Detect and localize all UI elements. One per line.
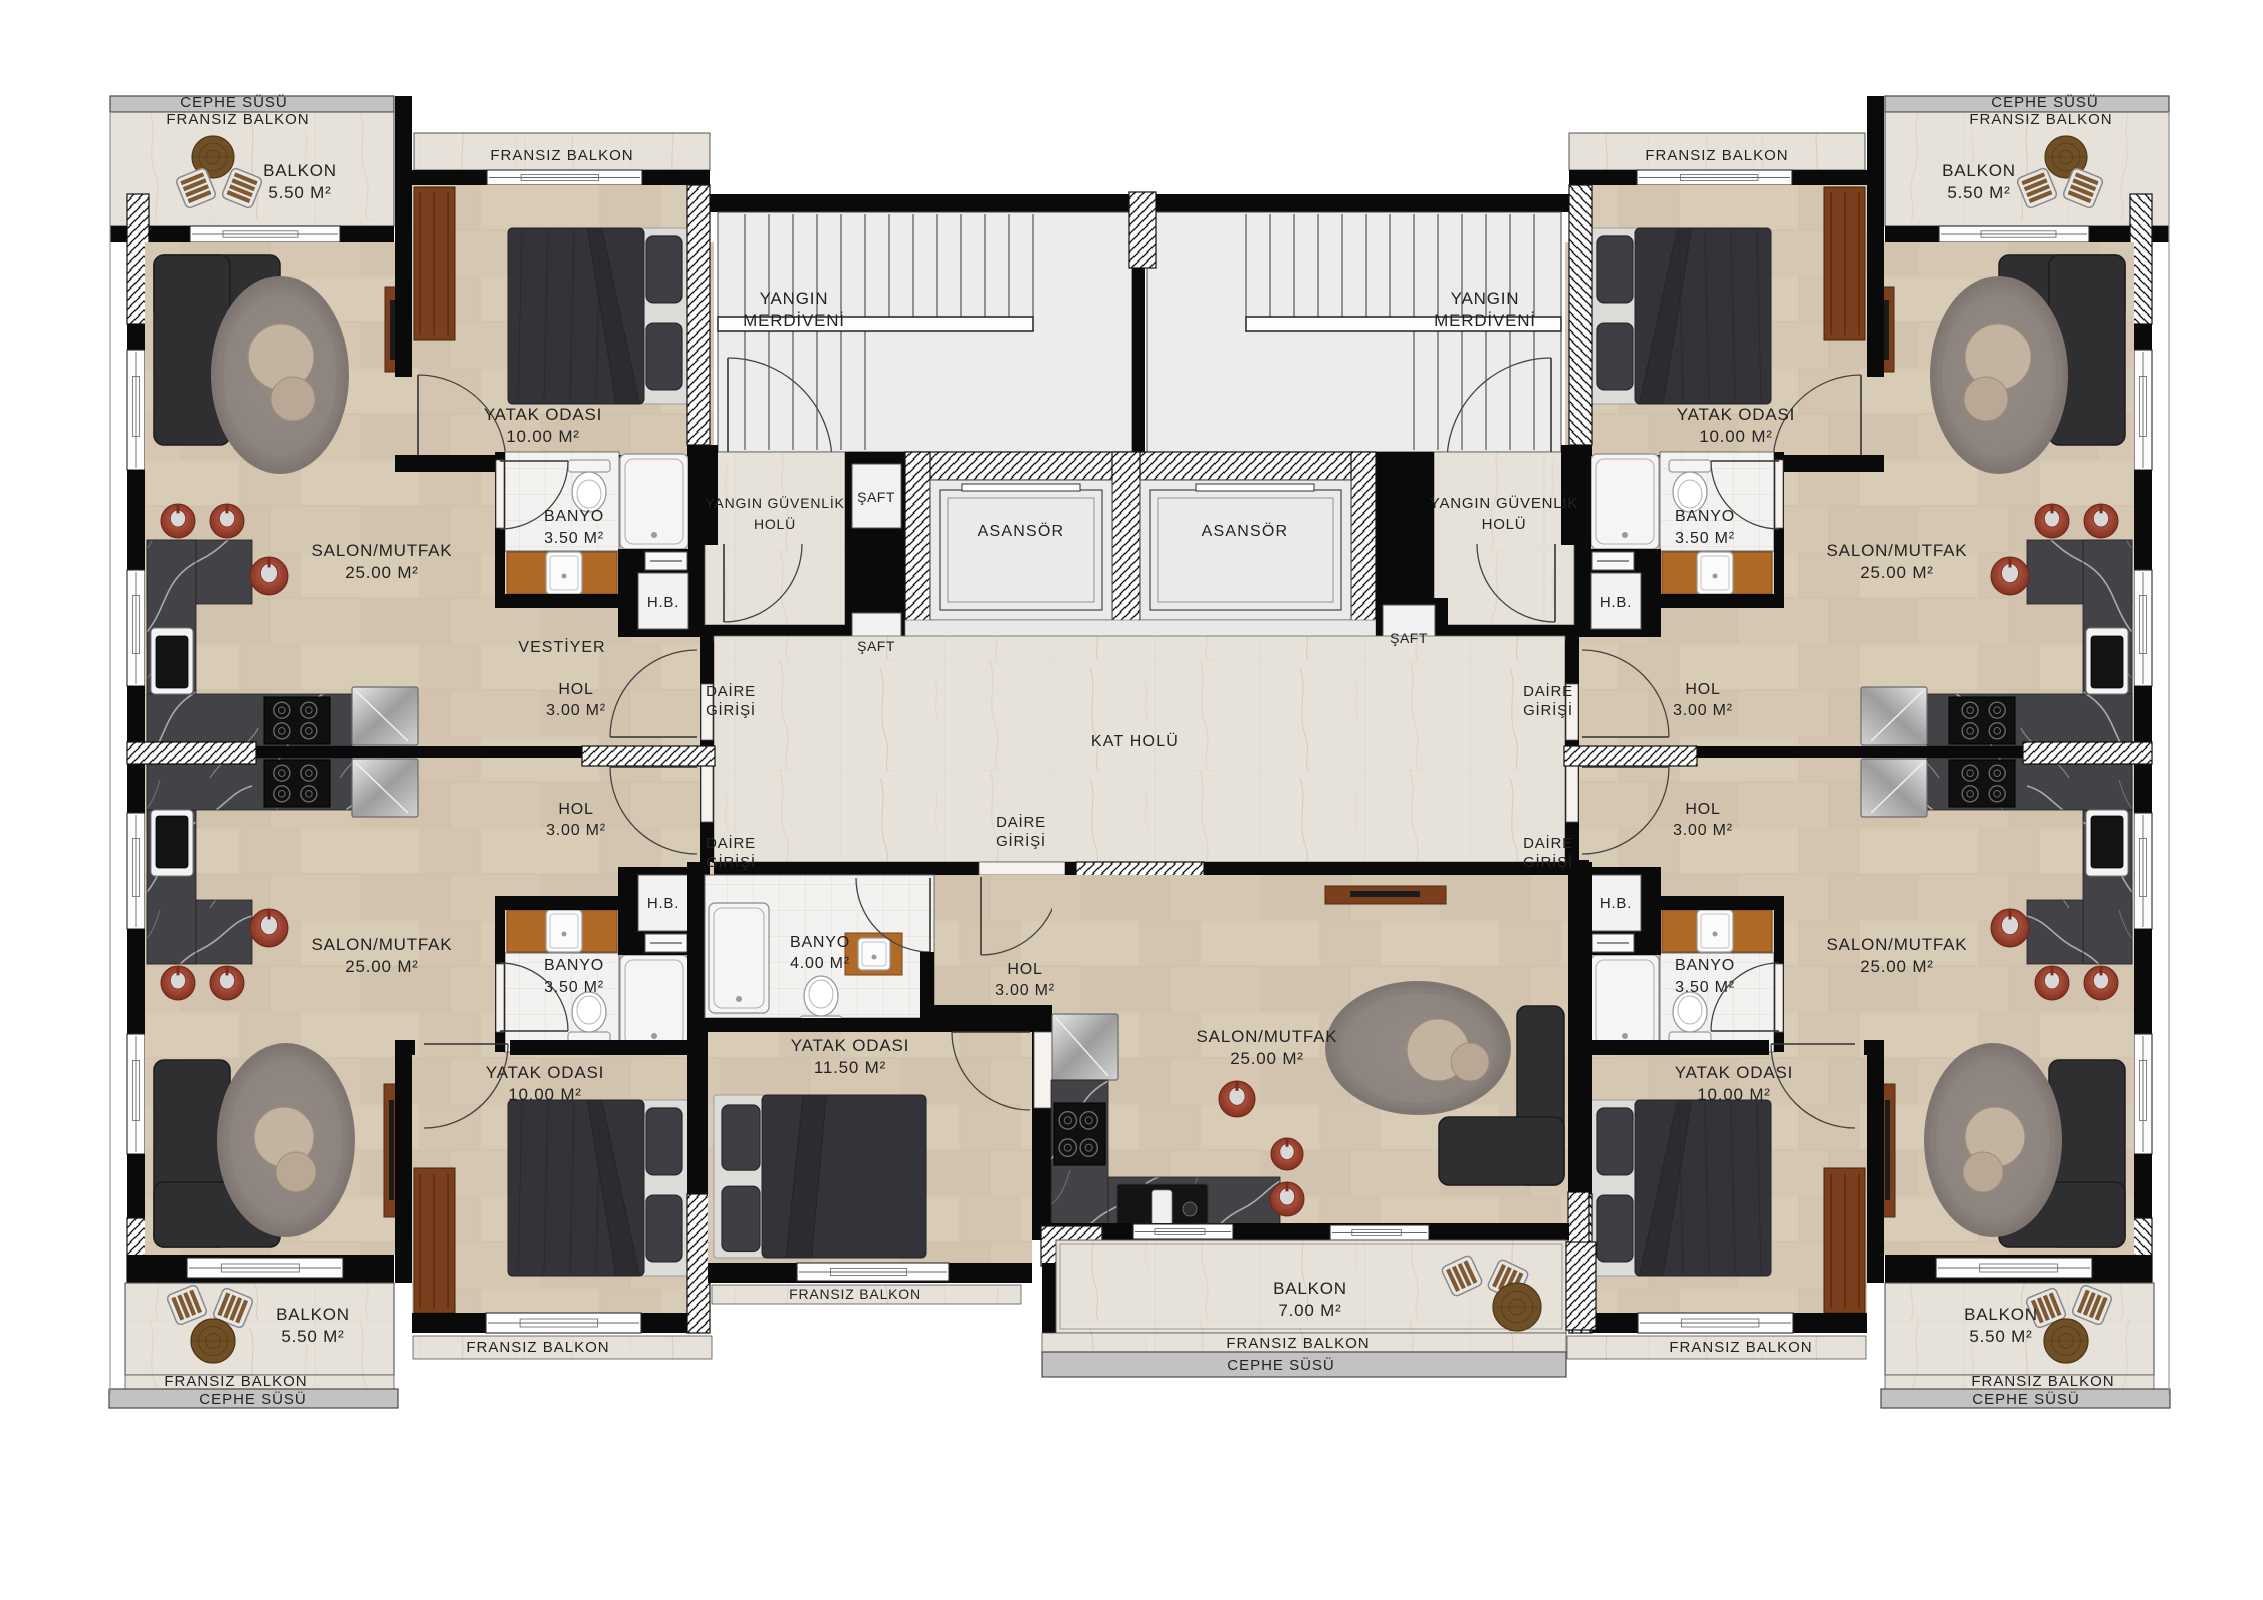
svg-text:BALKON: BALKON <box>1273 1279 1347 1298</box>
svg-text:H.B.: H.B. <box>1600 594 1632 611</box>
svg-text:SALON/MUTFAK: SALON/MUTFAK <box>1197 1027 1338 1046</box>
svg-text:10.00 M²: 10.00 M² <box>508 1085 582 1104</box>
svg-text:10.00 M²: 10.00 M² <box>1699 427 1773 446</box>
svg-text:FRANSIZ BALKON: FRANSIZ BALKON <box>164 1373 307 1390</box>
svg-text:CEPHE SÜSÜ: CEPHE SÜSÜ <box>199 1390 307 1408</box>
svg-text:ŞAFT: ŞAFT <box>1390 630 1428 646</box>
svg-text:H.B.: H.B. <box>647 895 679 912</box>
svg-text:5.50 M²: 5.50 M² <box>268 183 331 202</box>
svg-text:MERDİVENİ: MERDİVENİ <box>1434 311 1536 330</box>
svg-text:YANGIN GÜVENLİK: YANGIN GÜVENLİK <box>705 494 844 511</box>
svg-text:H.B.: H.B. <box>647 594 679 611</box>
svg-text:3.50 M²: 3.50 M² <box>544 530 604 547</box>
svg-text:FRANSIZ BALKON: FRANSIZ BALKON <box>490 147 633 164</box>
svg-text:YATAK ODASI: YATAK ODASI <box>1675 1063 1793 1082</box>
svg-text:FRANSIZ BALKON: FRANSIZ BALKON <box>789 1286 921 1302</box>
svg-text:DAİRE: DAİRE <box>996 813 1046 831</box>
svg-text:3.00 M²: 3.00 M² <box>546 702 606 719</box>
svg-text:YANGIN: YANGIN <box>1451 289 1520 308</box>
svg-text:FRANSIZ BALKON: FRANSIZ BALKON <box>1645 147 1788 164</box>
svg-text:SALON/MUTFAK: SALON/MUTFAK <box>312 935 453 954</box>
svg-text:GİRİŞİ: GİRİŞİ <box>1523 853 1573 871</box>
svg-text:ASANSÖR: ASANSÖR <box>978 522 1065 540</box>
svg-text:YATAK ODASI: YATAK ODASI <box>1677 405 1795 424</box>
svg-text:FRANSIZ BALKON: FRANSIZ BALKON <box>1969 111 2112 128</box>
svg-text:FRANSIZ BALKON: FRANSIZ BALKON <box>1669 1339 1812 1356</box>
svg-text:5.50 M²: 5.50 M² <box>1947 183 2010 202</box>
svg-text:HOLÜ: HOLÜ <box>1482 515 1527 533</box>
svg-text:YATAK ODASI: YATAK ODASI <box>484 405 602 424</box>
svg-text:GİRİŞİ: GİRİŞİ <box>706 701 756 719</box>
svg-text:SALON/MUTFAK: SALON/MUTFAK <box>312 541 453 560</box>
svg-text:HOLÜ: HOLÜ <box>754 515 796 532</box>
svg-text:BALKON: BALKON <box>263 161 337 180</box>
svg-text:4.00 M²: 4.00 M² <box>790 955 850 972</box>
svg-text:HOL: HOL <box>558 681 593 698</box>
svg-text:FRANSIZ BALKON: FRANSIZ BALKON <box>1971 1373 2114 1390</box>
svg-text:BANYO: BANYO <box>1675 957 1735 974</box>
svg-text:3.50 M²: 3.50 M² <box>1675 979 1735 996</box>
svg-text:DAİRE: DAİRE <box>706 834 756 852</box>
svg-text:FRANSIZ BALKON: FRANSIZ BALKON <box>466 1339 609 1356</box>
svg-text:3.00 M²: 3.00 M² <box>995 982 1055 999</box>
svg-text:DAİRE: DAİRE <box>1523 682 1573 700</box>
svg-text:3.50 M²: 3.50 M² <box>1675 530 1735 547</box>
svg-text:KAT HOLÜ: KAT HOLÜ <box>1091 732 1179 750</box>
svg-text:CEPHE SÜSÜ: CEPHE SÜSÜ <box>180 93 288 111</box>
svg-text:25.00 M²: 25.00 M² <box>1860 563 1934 582</box>
svg-text:BANYO: BANYO <box>1675 508 1735 525</box>
svg-text:HOL: HOL <box>558 801 593 818</box>
svg-text:BALKON: BALKON <box>1964 1305 2038 1324</box>
svg-text:10.00 M²: 10.00 M² <box>1697 1085 1771 1104</box>
svg-text:VESTİYER: VESTİYER <box>518 637 605 656</box>
svg-text:BALKON: BALKON <box>1942 161 2016 180</box>
svg-text:3.50 M²: 3.50 M² <box>544 979 604 996</box>
svg-text:DAİRE: DAİRE <box>1523 834 1573 852</box>
svg-text:5.50 M²: 5.50 M² <box>281 1327 344 1346</box>
svg-text:CEPHE SÜSÜ: CEPHE SÜSÜ <box>1991 93 2099 111</box>
svg-text:5.50 M²: 5.50 M² <box>1969 1327 2032 1346</box>
svg-text:YANGIN: YANGIN <box>760 289 829 308</box>
svg-text:BANYO: BANYO <box>544 957 604 974</box>
svg-text:BALKON: BALKON <box>276 1305 350 1324</box>
svg-text:25.00 M²: 25.00 M² <box>1860 957 1934 976</box>
svg-text:CEPHE SÜSÜ: CEPHE SÜSÜ <box>1227 1356 1335 1374</box>
svg-text:MERDİVENİ: MERDİVENİ <box>743 311 845 330</box>
svg-text:FRANSIZ BALKON: FRANSIZ BALKON <box>1226 1335 1369 1352</box>
svg-text:SALON/MUTFAK: SALON/MUTFAK <box>1827 935 1968 954</box>
svg-text:GİRİŞİ: GİRİŞİ <box>706 853 756 871</box>
svg-text:CEPHE SÜSÜ: CEPHE SÜSÜ <box>1972 1390 2080 1408</box>
svg-text:3.00 M²: 3.00 M² <box>546 822 606 839</box>
svg-text:DAİRE: DAİRE <box>706 682 756 700</box>
svg-text:10.00 M²: 10.00 M² <box>506 427 580 446</box>
svg-text:SALON/MUTFAK: SALON/MUTFAK <box>1827 541 1968 560</box>
svg-text:BANYO: BANYO <box>790 934 850 951</box>
svg-text:YANGIN GÜVENLİK: YANGIN GÜVENLİK <box>1430 494 1578 512</box>
svg-text:GİRİŞİ: GİRİŞİ <box>996 832 1046 850</box>
svg-text:H.B.: H.B. <box>1600 895 1632 912</box>
svg-text:FRANSIZ BALKON: FRANSIZ BALKON <box>166 111 309 128</box>
svg-text:25.00 M²: 25.00 M² <box>1230 1049 1304 1068</box>
svg-text:HOL: HOL <box>1685 681 1720 698</box>
svg-text:ŞAFT: ŞAFT <box>857 638 895 654</box>
svg-text:7.00 M²: 7.00 M² <box>1278 1301 1341 1320</box>
svg-text:3.00 M²: 3.00 M² <box>1673 822 1733 839</box>
svg-text:BANYO: BANYO <box>544 508 604 525</box>
svg-text:ASANSÖR: ASANSÖR <box>1202 522 1289 540</box>
svg-text:3.00 M²: 3.00 M² <box>1673 702 1733 719</box>
svg-text:11.50 M²: 11.50 M² <box>814 1058 886 1077</box>
svg-text:25.00 M²: 25.00 M² <box>345 563 419 582</box>
svg-text:ŞAFT: ŞAFT <box>857 489 895 505</box>
svg-text:YATAK ODASI: YATAK ODASI <box>791 1036 909 1055</box>
svg-text:GİRİŞİ: GİRİŞİ <box>1523 701 1573 719</box>
svg-text:HOL: HOL <box>1685 801 1720 818</box>
svg-text:HOL: HOL <box>1007 961 1042 978</box>
svg-text:YATAK ODASI: YATAK ODASI <box>486 1063 604 1082</box>
svg-text:25.00 M²: 25.00 M² <box>345 957 419 976</box>
